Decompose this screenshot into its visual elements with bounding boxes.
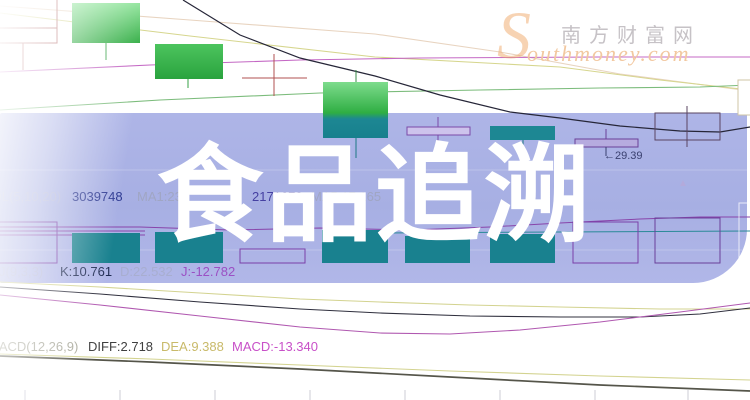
candle-green-2	[155, 44, 223, 88]
macd-diff-line	[0, 356, 750, 391]
macd-indicator-row: MACD(12,26,9) DIFF:2.718 DEA:9.388 MACD:…	[0, 339, 750, 355]
kdj-j-value: J:-12.782	[181, 264, 235, 279]
macd-dea-line	[0, 354, 750, 380]
kdj-pane	[0, 282, 750, 334]
ma-line-black	[183, 0, 750, 132]
kdj-k-value: K:10.761	[60, 264, 112, 279]
candle-hollow-left	[0, 0, 57, 70]
candle-green-1	[72, 3, 140, 60]
kdj-j-line	[0, 295, 750, 334]
page-title: 食品追溯	[0, 141, 750, 251]
macd-macd-value: MACD:-13.340	[232, 339, 318, 354]
kdj-label: KDJ(9,3,3)	[0, 264, 43, 279]
macd-pane	[0, 354, 750, 391]
stock-chart-screenshot: VOL(5,10,20) 3039748 MA1:23 2171670 MA5:…	[0, 0, 750, 400]
x-axis-ticks	[25, 390, 688, 400]
macd-diff-value: DIFF:2.718	[88, 339, 153, 354]
ma-line-magenta	[0, 57, 750, 72]
macd-label: MACD(12,26,9)	[0, 339, 78, 354]
macd-dea-value: DEA:9.388	[161, 339, 224, 354]
kdj-indicator-row: KDJ(9,3,3) K:10.761 D:22.532 J:-12.782	[0, 264, 750, 280]
candlesticks	[0, 0, 750, 158]
kdj-d-value: D:22.532	[120, 264, 173, 279]
candle-edge-right	[738, 80, 750, 115]
